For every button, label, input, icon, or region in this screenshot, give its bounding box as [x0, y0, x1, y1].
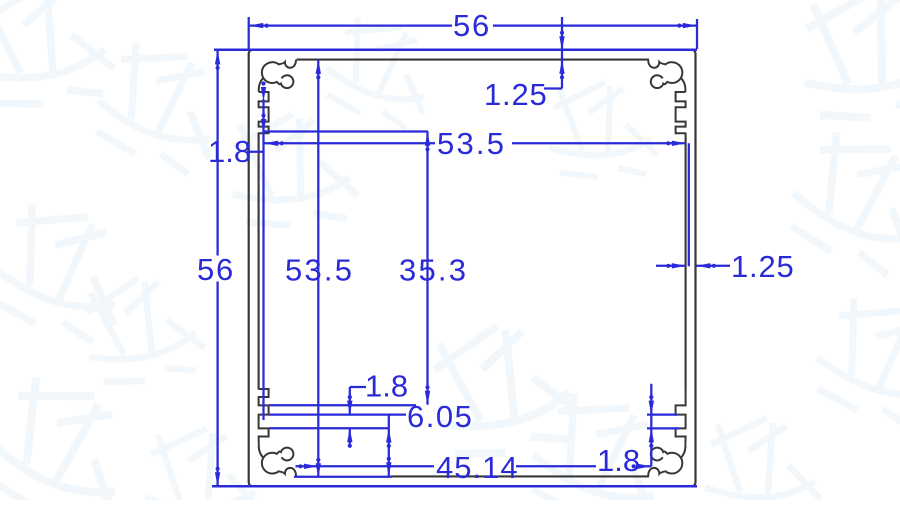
- svg-text:1.25: 1.25: [731, 249, 795, 284]
- svg-text:6.05: 6.05: [407, 399, 473, 434]
- svg-text:56: 56: [453, 8, 491, 43]
- svg-text:1.25: 1.25: [484, 77, 548, 112]
- svg-text:45.14: 45.14: [436, 450, 519, 485]
- svg-text:56: 56: [197, 252, 235, 287]
- svg-text:1.8: 1.8: [208, 134, 251, 169]
- svg-text:53.5: 53.5: [437, 126, 506, 161]
- svg-text:35.3: 35.3: [399, 253, 468, 288]
- svg-text:1.8: 1.8: [597, 443, 640, 478]
- svg-text:53.5: 53.5: [285, 253, 354, 288]
- svg-text:1.8: 1.8: [365, 369, 408, 404]
